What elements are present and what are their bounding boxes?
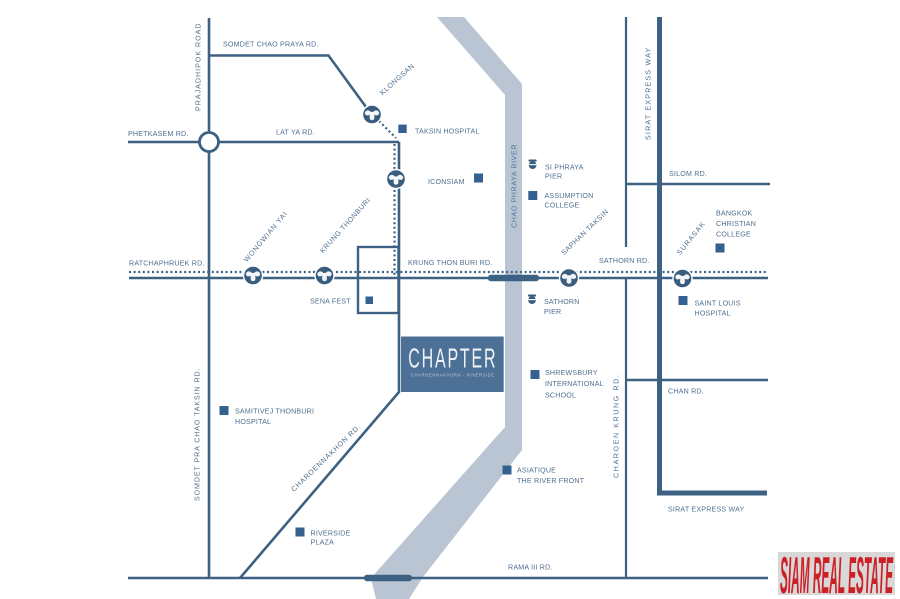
svg-text:PRAJADHIPOK ROAD: PRAJADHIPOK ROAD	[195, 22, 203, 111]
svg-text:CHRISTIAN: CHRISTIAN	[716, 220, 756, 228]
svg-text:RATCHAPHRUEK RD.: RATCHAPHRUEK RD.	[129, 260, 205, 268]
svg-text:PHETKASEM RD.: PHETKASEM RD.	[128, 130, 189, 138]
svg-text:SOMDET CHAO PRAYA RD.: SOMDET CHAO PRAYA RD.	[223, 41, 319, 49]
svg-text:SOMDET PRA CHAO TAKSIN RD.: SOMDET PRA CHAO TAKSIN RD.	[194, 368, 202, 501]
svg-text:SENA FEST: SENA FEST	[310, 298, 351, 306]
svg-text:KRUNG THON BURI RD.: KRUNG THON BURI RD.	[408, 259, 492, 267]
svg-text:HOSPITAL: HOSPITAL	[695, 310, 731, 318]
svg-text:SIRAT EXPRESS WAY: SIRAT EXPRESS WAY	[668, 506, 745, 514]
svg-text:PLAZA: PLAZA	[311, 539, 335, 547]
svg-text:SHREWSBURY: SHREWSBURY	[545, 369, 598, 377]
svg-text:SAINT LOUIS: SAINT LOUIS	[695, 300, 741, 308]
svg-text:ICONSIAM: ICONSIAM	[428, 178, 465, 186]
svg-text:PIER: PIER	[545, 173, 562, 181]
svg-text:CHAO PHRAYA RIVER: CHAO PHRAYA RIVER	[511, 144, 519, 228]
svg-text:SILOM RD.: SILOM RD.	[669, 170, 707, 178]
svg-text:LAT YA RD.: LAT YA RD.	[276, 129, 315, 137]
svg-text:RIVERSIDE: RIVERSIDE	[311, 530, 351, 538]
svg-text:TAKSIN HOSPITAL: TAKSIN HOSPITAL	[415, 128, 480, 136]
svg-text:BANGKOK: BANGKOK	[716, 210, 753, 218]
svg-text:CHAN RD.: CHAN RD.	[668, 388, 704, 396]
svg-text:SIAM REAL ESTATE: SIAM REAL ESTATE	[780, 546, 894, 599]
svg-text:COLLEGE: COLLEGE	[716, 231, 751, 239]
svg-text:THE RIVER FRONT: THE RIVER FRONT	[517, 477, 585, 485]
svg-text:SCHOOL: SCHOOL	[545, 392, 576, 400]
svg-text:SATHORN: SATHORN	[544, 298, 580, 306]
svg-text:PIER: PIER	[544, 308, 561, 316]
svg-text:COLLEGE: COLLEGE	[545, 201, 580, 209]
svg-text:HOSPITAL: HOSPITAL	[235, 418, 271, 426]
svg-text:ASIATIQUE: ASIATIQUE	[517, 467, 556, 475]
svg-text:RAMA III RD.: RAMA III RD.	[508, 564, 553, 572]
svg-text:CHAPTER: CHAPTER	[408, 343, 497, 374]
svg-text:ASSUMPTION: ASSUMPTION	[545, 192, 594, 200]
svg-text:INTERNATIONAL: INTERNATIONAL	[545, 380, 604, 388]
svg-text:SI PHRAYA: SI PHRAYA	[545, 164, 584, 172]
svg-text:CHAROENNAKHORN - RIVERSIDE: CHAROENNAKHORN - RIVERSIDE	[411, 373, 495, 378]
svg-text:SIRAT EXPRESS WAY: SIRAT EXPRESS WAY	[645, 47, 653, 140]
svg-text:SAMITIVEJ THONBURI: SAMITIVEJ THONBURI	[235, 408, 314, 416]
svg-text:CHAROEN KRUNG RD.: CHAROEN KRUNG RD.	[613, 374, 621, 478]
svg-text:SATHORN RD.: SATHORN RD.	[599, 257, 650, 265]
